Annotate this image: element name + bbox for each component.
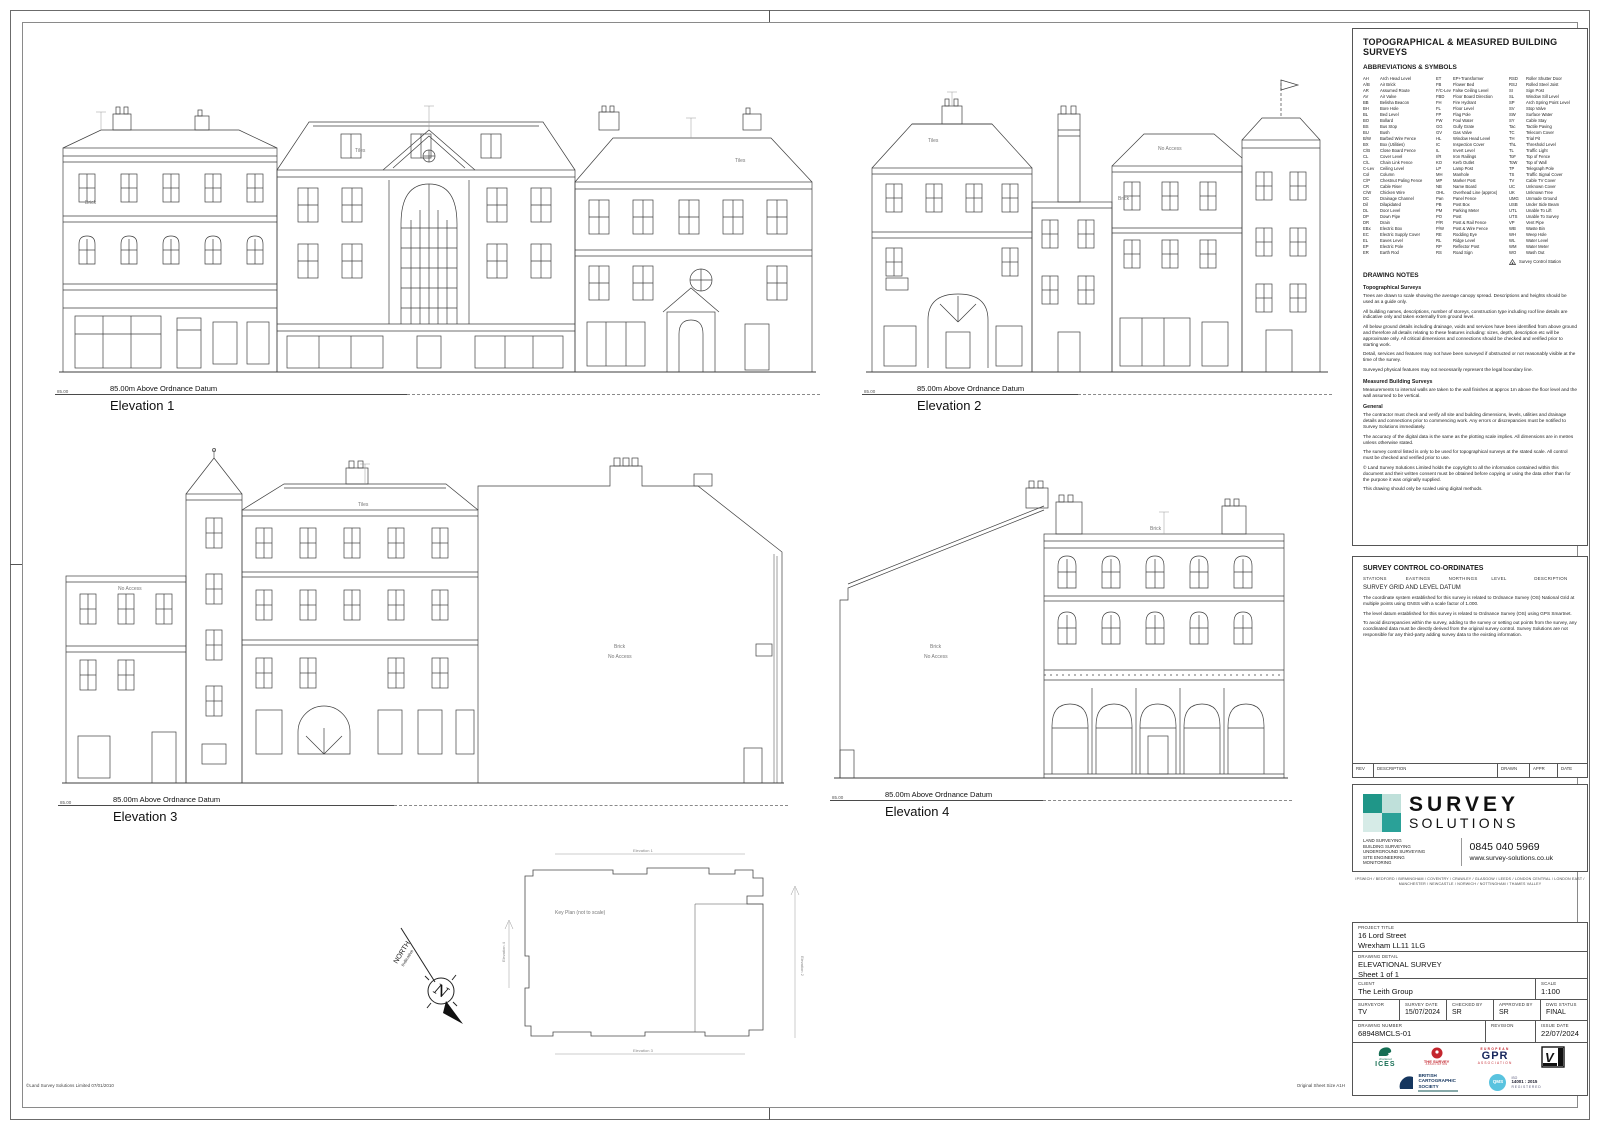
panel-title: TOPOGRAPHICAL & MEASURED BUILDING SURVEY… [1363,37,1577,57]
revision-cell: REVISION [1485,1021,1535,1043]
material-label: Brick [85,200,97,206]
elevation-3: Brick No Access Tiles No Access 85.00 85… [58,448,788,824]
survey-control-heading: SURVEY CONTROL CO-ORDINATES [1363,565,1577,572]
note-line: All building names, descriptions, number… [1363,309,1577,321]
note-line: The survey control listed is only to be … [1363,449,1577,461]
note-line: Trees are drawn to scale showing the ave… [1363,293,1577,305]
elevation-4-drawing: Brick No Access Brick [830,478,1292,788]
drawing-number-cell: DRAWING NUMBER 68948MCLS-01 [1353,1021,1485,1043]
abbreviations-col-3-stack: RSDRoller Shutter DoorRSJRolled Steel Jo… [1509,76,1577,265]
north-arrow-icon: N NORTH Indicative [385,912,477,1030]
material-label: No Access [924,654,948,660]
ices-lion-icon [1377,1046,1393,1058]
survey-control-panel: SURVEY CONTROL CO-ORDINATES STATIONS EAS… [1352,556,1588,778]
elevation-1-drawing: Tiles Brick Tiles [55,72,820,382]
datum-line: 85.00 85.00m Above Ordnance Datum [58,793,788,806]
survey-control-notes: The coordinate system established for th… [1363,595,1577,638]
note-line: Measurements to internal walls are taken… [1363,387,1577,399]
footer-copyright: ©Land Survey Solutions Limited 07/01/201… [26,1083,114,1088]
survey-date-cell: SURVEY DATE 15/07/2024 [1399,1000,1446,1020]
qms-badge: QMS [1489,1074,1506,1091]
gpr-association-logo: EUROPEAN GPR ASSOCIATION [1478,1048,1513,1065]
sight-label-bottom: Elevation 3 [633,1048,654,1053]
note-line: The contractor must check and verify all… [1363,412,1577,429]
brand-contact: 0845 040 5969 www.survey-solutions.co.uk [1470,841,1577,862]
approved-by-value: SR [1499,1009,1535,1016]
service-line: MONITORING [1363,860,1453,866]
note-line: Detail, services and features may not ha… [1363,351,1577,363]
note-line: © Land Survey Solutions Limited holds th… [1363,465,1577,482]
qms-iso-logo: QMS ISO 14001 : 2015 REGISTERED [1489,1074,1541,1091]
elevation-3-title: Elevation 3 [113,809,788,824]
note-line: The accuracy of the digital data is the … [1363,434,1577,446]
drawing-detail-2: Sheet 1 of 1 [1358,970,1582,979]
material-label: Brick [1150,526,1162,532]
datum-label: 85.00m Above Ordnance Datum [110,384,217,393]
datum-line: 85.00 85.00m Above Ordnance Datum [830,788,1292,801]
divider [1461,838,1462,866]
material-label: Tiles [355,148,366,154]
survey-association-logo: THE SURVEY ASSOCIATION [1424,1047,1450,1067]
material-label: No Access [1158,146,1182,152]
svg-text:V: V [1545,1050,1555,1065]
grid-datum-heading: SURVEY GRID AND LEVEL DATUM [1363,585,1577,591]
surveyor-value: TV [1358,1009,1394,1016]
footer-sheet-size: Original Sheet Size A1H [1230,1083,1345,1088]
client-name: The Leith Group [1358,987,1530,996]
material-label: Tiles [358,502,369,508]
material-label: No Access [608,654,632,660]
drawing-sheet: Tiles Brick Tiles 85.00 85.00m Above Ord… [0,0,1600,1130]
abbreviation-row: RSRoad Sign [1436,250,1504,256]
control-paragraph: The level datum established for this sur… [1363,611,1577,617]
approved-by-cell: APPROVED BY SR [1493,1000,1540,1020]
datum-label: 85.00m Above Ordnance Datum [885,790,992,799]
survey-control-columns: STATIONS EASTINGS NORTHINGS LEVEL DESCRI… [1363,576,1577,581]
scale-cell: SCALE 1:100 [1535,979,1587,999]
bcs-tagline [1418,1090,1458,1092]
elevation-4: Brick No Access Brick 85.00 85.00m Above… [830,478,1292,819]
note-line: Measured Building Surveys [1363,379,1577,385]
drawing-number-value: 68948MCLS-01 [1358,1029,1480,1038]
drawing-detail-1: ELEVATIONAL SURVEY [1358,960,1582,969]
material-label: Brick [1118,196,1130,202]
note-line: Surveyed physical features may not neces… [1363,367,1577,373]
survey-station-row: Survey Control Station [1509,259,1577,265]
edge-tick-bottom [769,1108,770,1120]
survey-station-icon [1509,259,1516,265]
material-label: No Access [118,586,142,592]
material-label: Brick [614,644,626,650]
scale-value: 1:100 [1541,987,1582,996]
control-paragraph: The coordinate system established for th… [1363,595,1577,607]
north-arrow: N NORTH Indicative [385,912,477,1030]
abbreviations-col-3: RSDRoller Shutter DoorRSJRolled Steel Jo… [1509,76,1577,256]
project-address-2: Wrexham LL11 1LG [1358,941,1582,950]
elevation-1: Tiles Brick Tiles 85.00 85.00m Above Ord… [55,72,820,413]
abbreviations-heading: ABBREVIATIONS & SYMBOLS [1363,64,1577,71]
elevation-4-title: Elevation 4 [885,804,1292,819]
sight-label-left: Elevation 4 [501,941,506,962]
surveyor-cell: SURVEYOR TV [1353,1000,1399,1020]
key-plan-drawing: Key Plan (not to scale) Elevation 1 Elev… [495,838,815,1068]
control-paragraph: To avoid discrepancies within the survey… [1363,620,1577,637]
bcs-icon [1398,1076,1414,1090]
issue-date-cell: ISSUE DATE 22/07/2024 [1535,1021,1587,1043]
sight-label-right: Elevation 2 [800,956,805,977]
note-line: This drawing should only be scaled using… [1363,486,1577,492]
issue-date-value: 22/07/2024 [1541,1029,1582,1038]
note-line: General [1363,404,1577,410]
ices-logo: chartered ICES [1375,1046,1395,1068]
british-cartographic-society-logo: BRITISH CARTOGRAPHIC SOCIETY [1398,1073,1458,1092]
elevation-2-drawing: Tiles No Access Brick [862,72,1332,382]
datum-level-value: 85.00 [864,389,875,394]
notes-panel: TOPOGRAPHICAL & MEASURED BUILDING SURVEY… [1352,28,1588,546]
datum-level-value: 85.00 [832,795,843,800]
project-title-cell: PROJECT TITLE 16 Lord Street Wrexham LL1… [1353,923,1587,951]
key-plan-label: Key Plan (not to scale) [555,910,606,916]
material-label: Brick [930,644,942,650]
checked-by-cell: CHECKED BY SR [1446,1000,1493,1020]
client-cell: CLIENT The Leith Group [1353,979,1535,999]
tsa-roundel-icon [1431,1047,1443,1059]
svg-text:N: N [430,979,452,1002]
abbreviations-col-2: ETEP+TransformerFBFlower BedF/C-LevFalse… [1436,76,1504,265]
note-line: All below ground details including drain… [1363,324,1577,347]
datum-line: 85.00 85.00m Above Ordnance Datum [862,382,1332,395]
edge-tick-top [769,10,770,22]
datum-label: 85.00m Above Ordnance Datum [917,384,1024,393]
elevation-1-title: Elevation 1 [110,398,820,413]
elevation-3-drawing: Brick No Access Tiles No Access [58,448,788,793]
survey-station-label: Survey Control Station [1519,259,1561,265]
elevation-2-title: Elevation 2 [917,398,1332,413]
datum-level-value: 85.00 [60,800,71,805]
note-line: Topographical Surveys [1363,285,1577,291]
dwg-status-cell: DWG STATUS FINAL [1540,1000,1587,1020]
revision-row: REV DESCRIPTION DRAWN APPR DATE [1353,763,1587,777]
certification-mark-icon: V [1541,1046,1565,1068]
accreditation-logos: chartered ICES THE SURVEY ASSOCIATION EU… [1352,1042,1588,1096]
phone-number: 0845 040 5969 [1470,841,1577,853]
title-block: PROJECT TITLE 16 Lord Street Wrexham LL1… [1352,922,1588,1044]
abbreviations-table: AHArch Head LevelA/BAir BrickARAssumed R… [1363,76,1577,265]
material-label: Tiles [928,138,939,144]
office-locations: IPSWICH / BEDFORD / BIRMINGHAM / COVENTR… [1352,877,1588,887]
brand-wordmark: SURVEY SOLUTIONS [1409,794,1519,831]
dwg-status-value: FINAL [1546,1009,1582,1016]
material-label: Tiles [735,158,746,164]
abbreviation-row: WOWash Out [1509,250,1577,256]
drawing-notes: Topographical SurveysTrees are drawn to … [1363,285,1577,492]
key-plan: Key Plan (not to scale) Elevation 1 Elev… [495,838,815,1068]
edge-tick-left [10,564,22,565]
brand-services: LAND SURVEYINGBUILDING SURVEYINGUNDERGRO… [1363,838,1453,866]
drawing-notes-heading: DRAWING NOTES [1363,272,1577,279]
website-url: www.survey-solutions.co.uk [1470,855,1577,862]
elevation-2: Tiles No Access Brick 85.00 85.00m Above… [862,72,1332,413]
survey-date-value: 15/07/2024 [1405,1009,1441,1016]
checked-by-value: SR [1452,1009,1488,1016]
datum-line: 85.00 85.00m Above Ordnance Datum [55,382,820,395]
certification-logo: V [1541,1046,1565,1068]
datum-label: 85.00m Above Ordnance Datum [113,795,220,804]
datum-level-value: 85.00 [57,389,68,394]
abbreviations-col-1: AHArch Head LevelA/BAir BrickARAssumed R… [1363,76,1431,265]
sight-label-top: Elevation 1 [633,848,654,853]
abbreviation-row: EREarth Rod [1363,250,1431,256]
project-address-1: 16 Lord Street [1358,931,1582,940]
drawing-detail-cell: DRAWING DETAIL ELEVATIONAL SURVEY Sheet … [1353,952,1587,978]
survey-solutions-logo [1363,794,1401,832]
brand-panel: SURVEY SOLUTIONS LAND SURVEYINGBUILDING … [1352,784,1588,872]
